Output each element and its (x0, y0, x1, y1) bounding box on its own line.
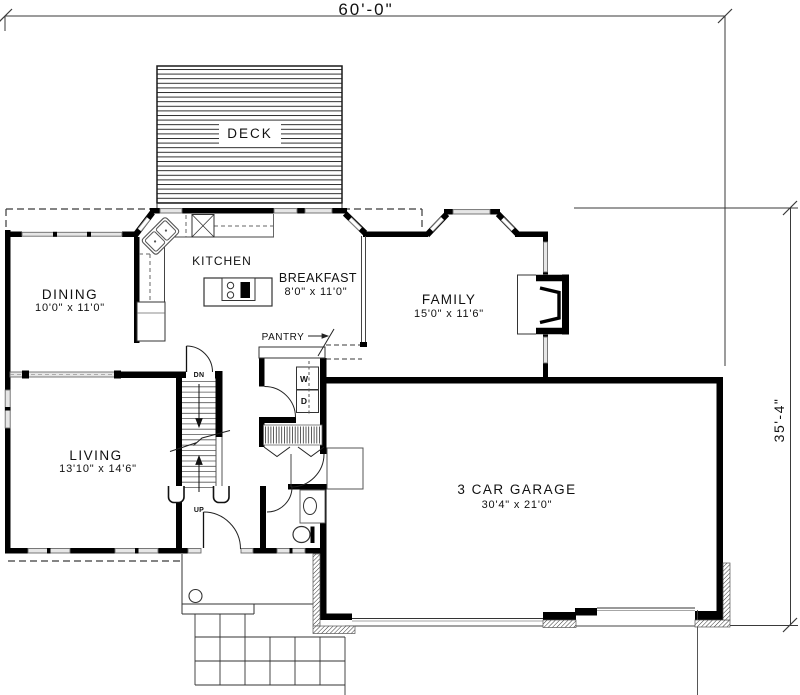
svg-text:UP: UP (194, 507, 204, 514)
svg-text:D: D (301, 396, 307, 406)
svg-text:3 CAR GARAGE: 3 CAR GARAGE (457, 482, 576, 497)
svg-text:8'0" x 11'0": 8'0" x 11'0" (285, 286, 348, 298)
svg-text:FAMILY: FAMILY (422, 292, 476, 307)
svg-text:W: W (300, 374, 309, 384)
svg-text:30'4" x 21'0": 30'4" x 21'0" (482, 499, 553, 511)
svg-text:KITCHEN: KITCHEN (192, 254, 252, 268)
svg-text:DINING: DINING (42, 287, 98, 302)
svg-text:15'0" x 11'6": 15'0" x 11'6" (414, 308, 484, 320)
svg-text:DN: DN (194, 372, 205, 379)
svg-text:13'10" x 14'6": 13'10" x 14'6" (59, 463, 137, 475)
svg-text:PANTRY: PANTRY (262, 332, 305, 343)
svg-text:DECK: DECK (227, 126, 273, 141)
svg-text:35'-4": 35'-4" (771, 398, 787, 443)
svg-text:BREAKFAST: BREAKFAST (279, 271, 357, 285)
svg-text:LIVING: LIVING (69, 448, 122, 463)
svg-text:10'0" x 11'0": 10'0" x 11'0" (35, 302, 105, 314)
svg-text:60'-0": 60'-0" (338, 0, 393, 19)
